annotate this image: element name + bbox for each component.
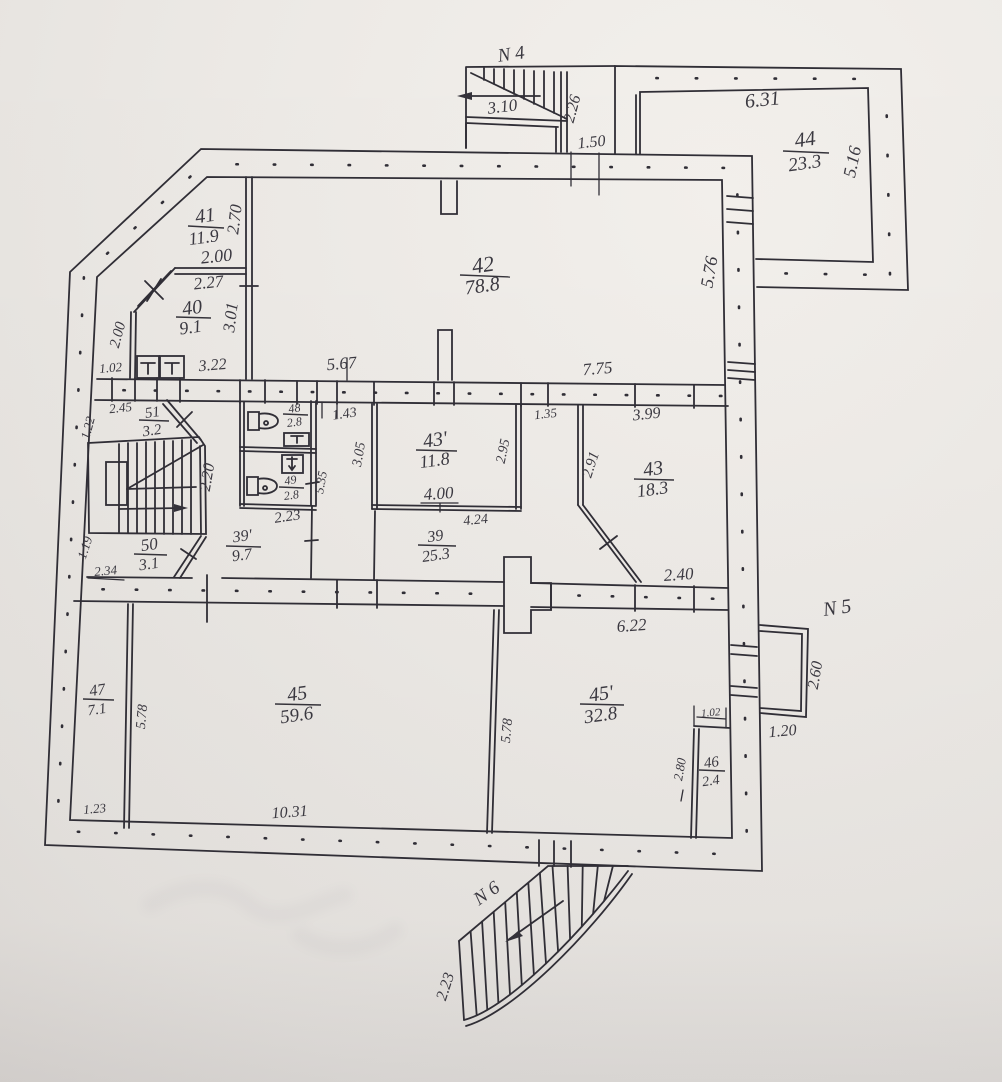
svg-text:3.01: 3.01 — [219, 301, 242, 334]
svg-text:1.20: 1.20 — [768, 722, 797, 741]
svg-text:44: 44 — [793, 126, 818, 153]
svg-text:1.23: 1.23 — [83, 800, 107, 817]
svg-text:39: 39 — [425, 527, 444, 546]
svg-text:10.31: 10.31 — [271, 803, 308, 822]
svg-text:N 5: N 5 — [821, 595, 853, 621]
svg-text:51: 51 — [144, 404, 161, 422]
svg-text:49: 49 — [284, 472, 298, 488]
svg-text:4.00: 4.00 — [423, 483, 455, 504]
svg-text:2.34: 2.34 — [94, 562, 118, 579]
svg-text:6.22: 6.22 — [616, 615, 648, 636]
svg-text:2.00: 2.00 — [200, 244, 233, 267]
svg-text:1.35: 1.35 — [533, 405, 558, 422]
svg-text:3.10: 3.10 — [485, 95, 518, 118]
svg-text:7.1: 7.1 — [87, 701, 108, 719]
svg-text:3.22: 3.22 — [197, 356, 227, 375]
svg-text:41: 41 — [194, 204, 217, 229]
svg-text:9.1: 9.1 — [178, 316, 203, 339]
svg-text:7.75: 7.75 — [582, 358, 613, 380]
svg-text:2.27: 2.27 — [193, 271, 226, 293]
svg-text:2.8: 2.8 — [286, 414, 303, 430]
svg-text:2.40: 2.40 — [663, 564, 695, 585]
svg-text:39': 39' — [231, 527, 254, 547]
svg-text:N 4: N 4 — [495, 42, 526, 67]
svg-text:3.2: 3.2 — [141, 422, 163, 441]
svg-text:2.4: 2.4 — [701, 773, 720, 790]
svg-text:4.24: 4.24 — [463, 512, 489, 529]
svg-text:6.31: 6.31 — [744, 87, 781, 113]
svg-text:45: 45 — [286, 682, 309, 707]
svg-text:2.8: 2.8 — [283, 487, 300, 503]
svg-text:2.45: 2.45 — [108, 399, 133, 416]
svg-text:1.02: 1.02 — [701, 706, 722, 720]
svg-text:1.50: 1.50 — [577, 133, 607, 153]
svg-text:5.78: 5.78 — [134, 704, 151, 730]
svg-text:3.1: 3.1 — [137, 555, 160, 575]
svg-text:1.02: 1.02 — [99, 359, 123, 376]
svg-text:50: 50 — [139, 534, 159, 555]
svg-text:5.78: 5.78 — [499, 718, 516, 744]
svg-text:9.7: 9.7 — [231, 546, 254, 566]
svg-text:46: 46 — [703, 754, 721, 772]
svg-text:5.67: 5.67 — [326, 353, 359, 375]
svg-text:11.8: 11.8 — [418, 448, 451, 472]
svg-text:3.99: 3.99 — [631, 405, 662, 425]
svg-text:2.70: 2.70 — [223, 203, 246, 235]
